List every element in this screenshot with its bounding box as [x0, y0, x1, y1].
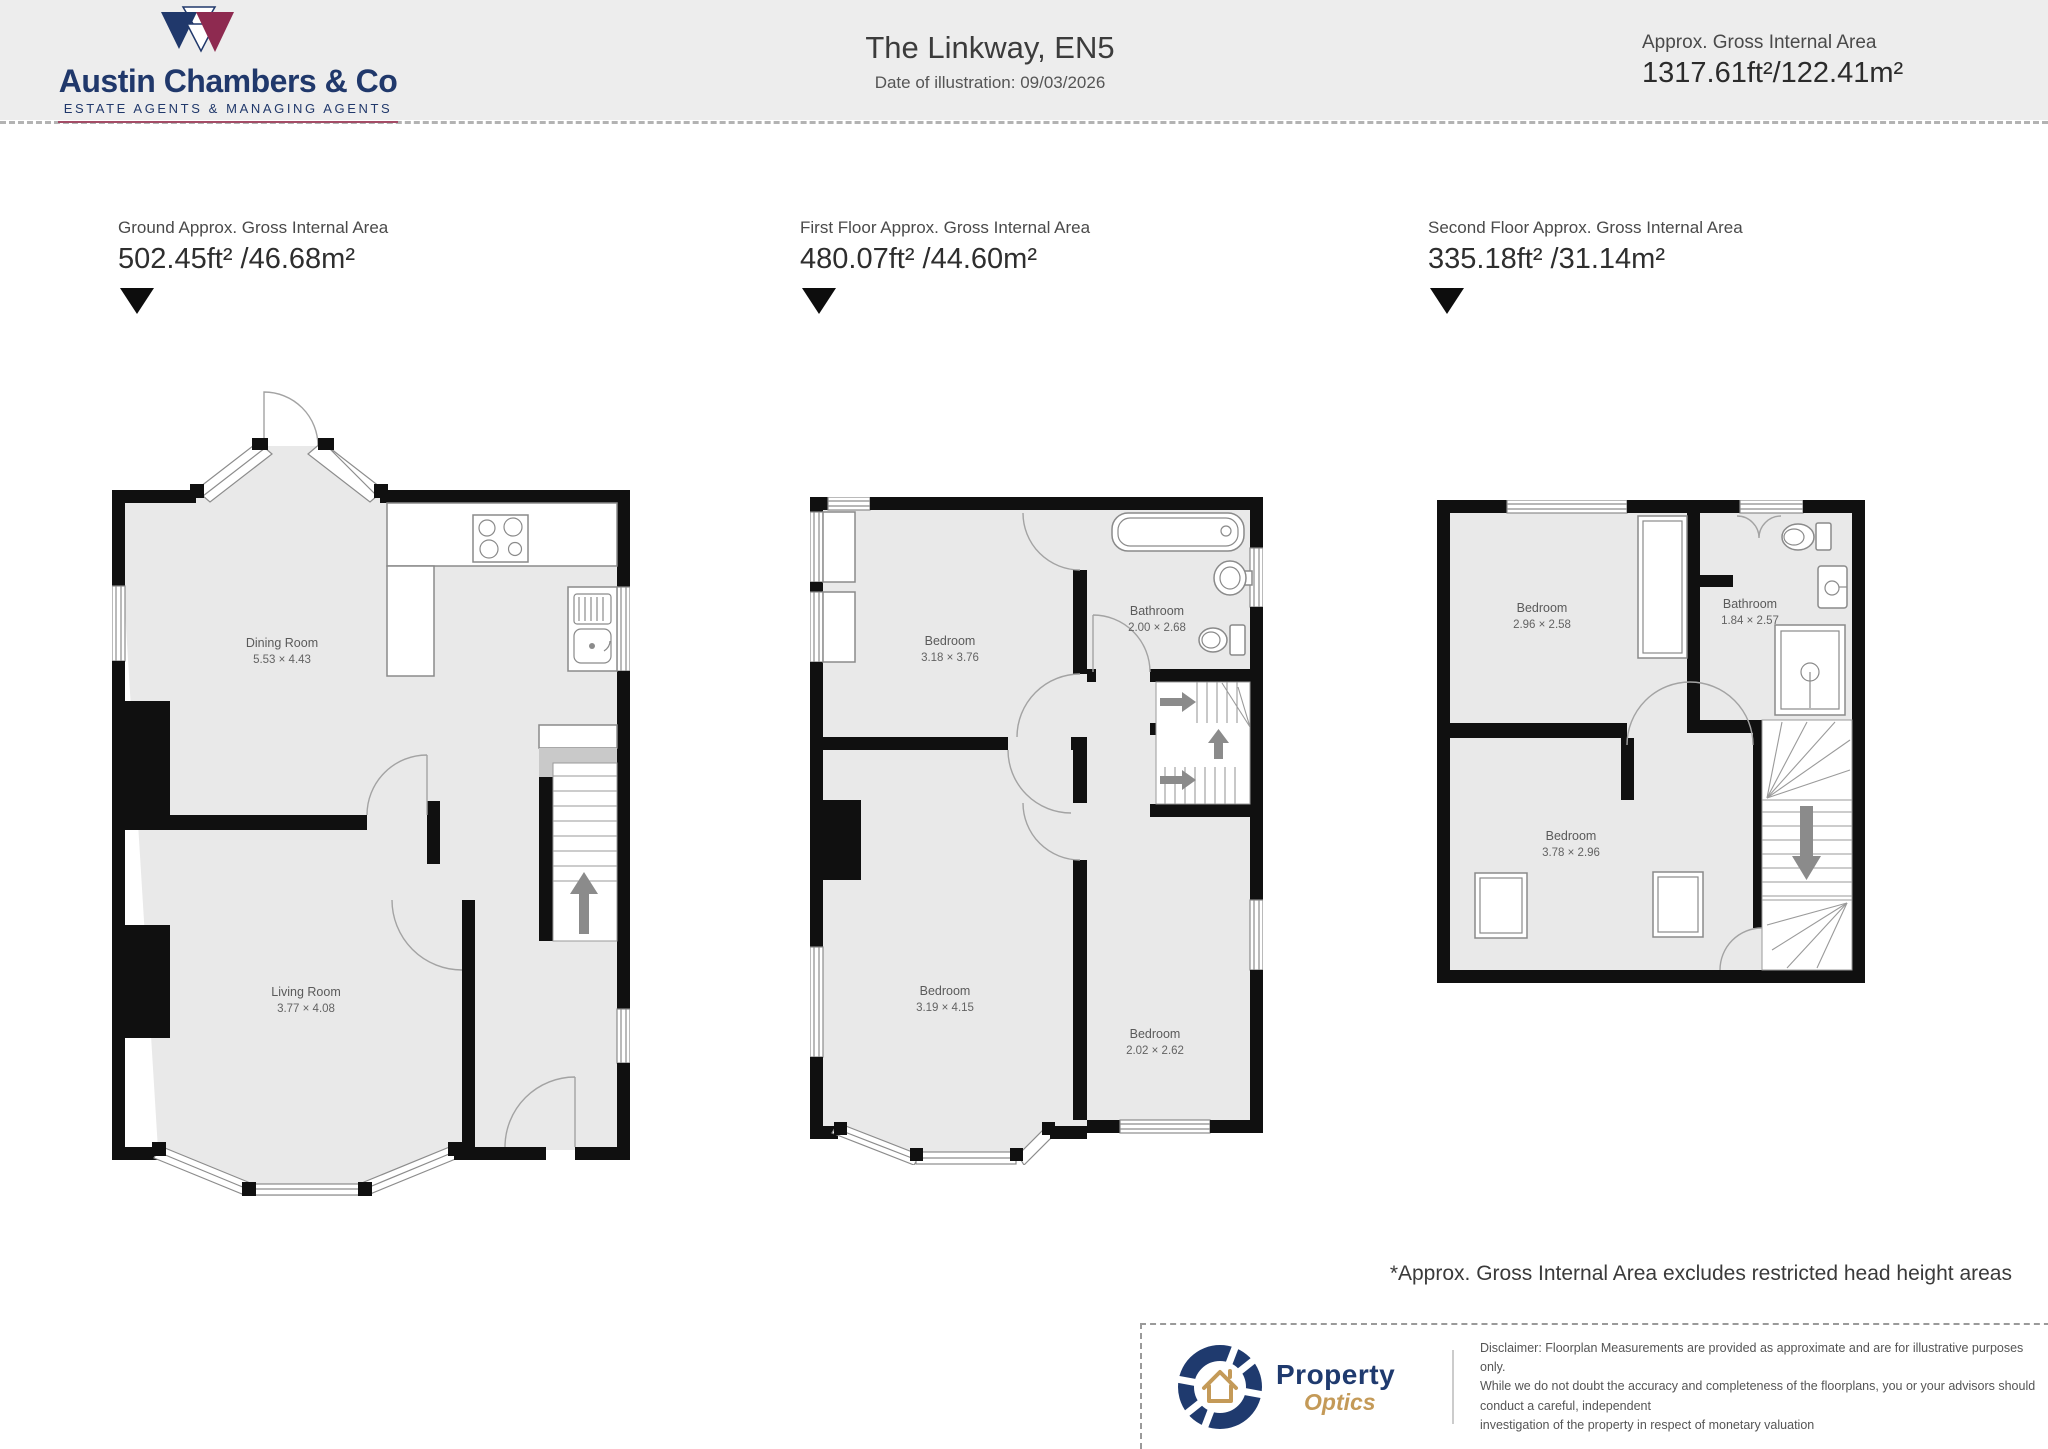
room-name: Bedroom [1517, 601, 1568, 615]
ground-floor-marker-icon [120, 288, 154, 314]
disclaimer-line-2: While we do not doubt the accuracy and c… [1480, 1377, 2040, 1416]
front-door-arc [264, 392, 318, 446]
room-dims: 3.18 × 3.76 [921, 652, 979, 664]
provider-name-line2: Optics [1304, 1389, 1446, 1416]
first-floor-label: First Floor Approx. Gross Internal Area [800, 218, 1220, 238]
room-name: Dining Room [246, 636, 318, 650]
chimney-breast [125, 701, 170, 823]
title-block: The Linkway, EN5 Date of illustration: 0… [760, 30, 1220, 93]
agency-logo: Austin Chambers & Co ESTATE AGENTS & MAN… [58, 6, 398, 123]
room-dims: 2.96 × 2.58 [1513, 619, 1571, 631]
room-dims: 1.84 × 2.57 [1721, 615, 1779, 627]
window [810, 592, 823, 662]
window [617, 1009, 630, 1063]
page-title: The Linkway, EN5 [760, 30, 1220, 66]
window [810, 512, 823, 582]
skylight [1475, 873, 1527, 938]
disclaimer-text: Disclaimer: Floorplan Measurements are p… [1480, 1339, 2040, 1436]
basin-icon [1818, 566, 1847, 608]
window [828, 497, 870, 510]
window-recess [823, 512, 855, 582]
worktop [539, 725, 617, 748]
toilet-icon [1782, 523, 1831, 550]
window [810, 947, 823, 1057]
room-dims: 3.19 × 4.15 [916, 1002, 974, 1014]
room-name: Bedroom [1546, 829, 1597, 843]
room-name: Bedroom [925, 634, 976, 648]
property-optics-logo-icon [1174, 1341, 1266, 1433]
total-area-label: Approx. Gross Internal Area [1642, 32, 2032, 54]
window [1740, 500, 1803, 513]
first-floor-area: 480.07ft² /44.60m² [800, 243, 1220, 276]
room-name: Bedroom [1130, 1027, 1181, 1041]
window [1120, 1120, 1210, 1133]
kitchen-counter [387, 566, 434, 676]
area-exclusion-note: *Approx. Gross Internal Area excludes re… [1390, 1262, 2012, 1286]
room-name: Bathroom [1723, 597, 1777, 611]
provider-box: Property Optics Disclaimer: Floorplan Me… [1140, 1323, 2048, 1449]
room-dims: 3.77 × 4.08 [277, 1003, 335, 1015]
provider-name-line1: Property [1276, 1359, 1446, 1391]
first-floor-marker-icon [802, 288, 836, 314]
second-floor-marker-icon [1430, 288, 1464, 314]
total-area-value: 1317.61ft²/122.41m² [1642, 57, 2032, 90]
agency-logo-triangles-icon [63, 6, 393, 58]
second-floor-label: Second Floor Approx. Gross Internal Area [1428, 218, 1848, 238]
first-floor-plan: Bedroom 3.18 × 3.76 Bathroom 2.00 × 2.68… [810, 497, 1263, 1165]
provider-name: Property Optics [1276, 1359, 1446, 1416]
window-recess [823, 592, 855, 662]
disclaimer-line-3: investigation of the property in respect… [1480, 1416, 2040, 1435]
ground-floor-area: 502.45ft² /46.68m² [118, 243, 538, 276]
shower-icon [1775, 625, 1845, 715]
illustration-date: Date of illustration: 09/03/2026 [760, 73, 1220, 93]
room-name: Living Room [271, 985, 340, 999]
room-name: Bathroom [1130, 604, 1184, 618]
bathtub-icon [1112, 513, 1244, 551]
first-floor-heading: First Floor Approx. Gross Internal Area … [800, 218, 1220, 314]
agency-name: Austin Chambers & Co [58, 65, 398, 99]
room-dims: 5.53 × 4.43 [253, 654, 311, 666]
closet [1638, 516, 1687, 658]
sink-icon [568, 587, 617, 671]
room-dims: 3.78 × 2.96 [1542, 847, 1600, 859]
ground-floor-heading: Ground Approx. Gross Internal Area 502.4… [118, 218, 538, 314]
ground-floor-plan: Dining Room 5.53 × 4.43 Living Room 3.77… [112, 386, 630, 1204]
chimney-breast [125, 925, 170, 1038]
disclaimer-line-1: Disclaimer: Floorplan Measurements are p… [1480, 1339, 2040, 1378]
skylight [1653, 872, 1703, 937]
stairs [553, 763, 617, 941]
second-floor-plan: Bedroom 2.96 × 2.58 Bathroom 1.84 × 2.57… [1437, 500, 1865, 985]
room-name: Bedroom [920, 984, 971, 998]
window [617, 587, 630, 671]
agency-tagline: ESTATE AGENTS & MANAGING AGENTS [58, 101, 398, 123]
second-floor-heading: Second Floor Approx. Gross Internal Area… [1428, 218, 1848, 314]
window [1250, 900, 1263, 970]
room-dims: 2.02 × 2.62 [1126, 1045, 1184, 1057]
stairs [1156, 682, 1250, 804]
chimney-breast [823, 800, 861, 880]
window [1507, 500, 1627, 513]
second-floor-area: 335.18ft² /31.14m² [1428, 243, 1848, 276]
vertical-divider [1452, 1350, 1454, 1424]
room-dims: 2.00 × 2.68 [1128, 622, 1186, 634]
total-area-block: Approx. Gross Internal Area 1317.61ft²/1… [1642, 32, 2032, 90]
window [112, 586, 125, 661]
hob-icon [473, 515, 528, 562]
ground-floor-label: Ground Approx. Gross Internal Area [118, 218, 538, 238]
